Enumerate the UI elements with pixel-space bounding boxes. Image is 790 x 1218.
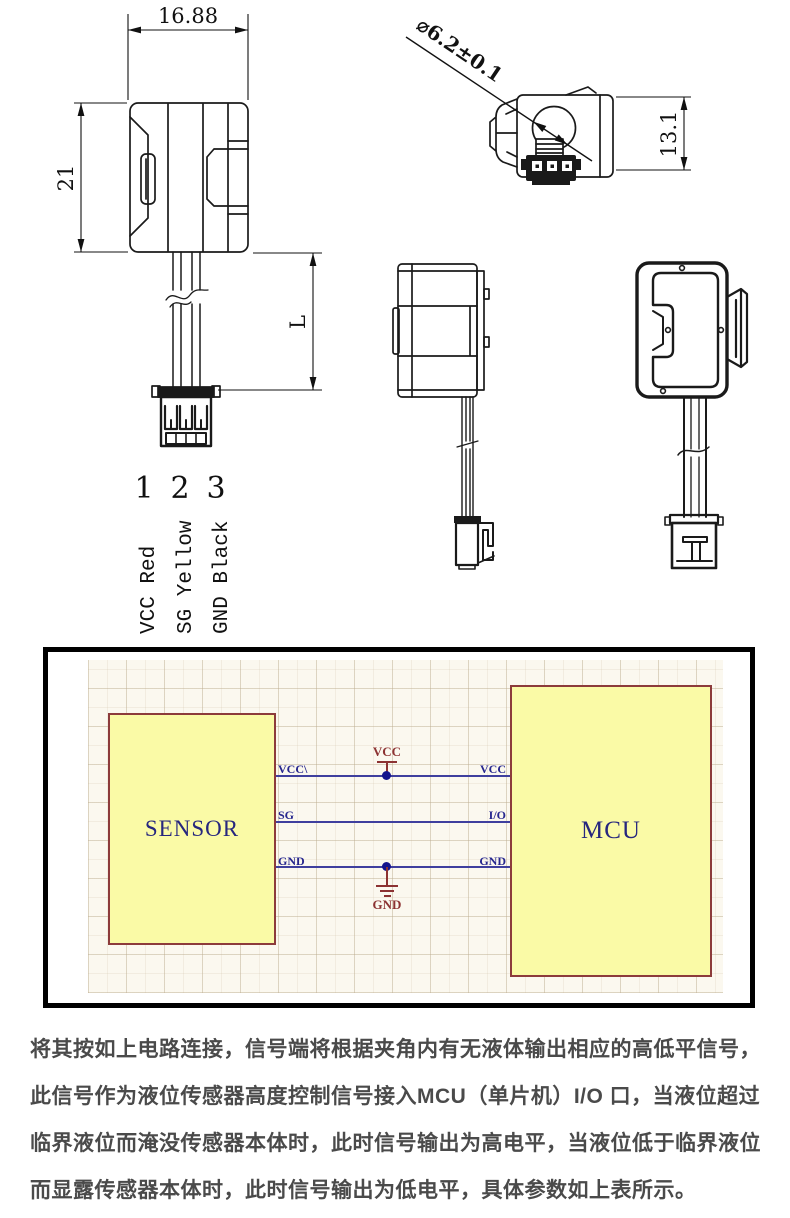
lead-dim-arrow-top	[310, 253, 317, 266]
top-connector-underbar	[532, 181, 570, 185]
back-screw-bottom	[661, 389, 666, 394]
top-connector-pin-2	[551, 165, 555, 169]
height-dim-arrow-top	[78, 103, 85, 116]
back-connector-slot	[677, 537, 712, 561]
width-dim-arrow-right	[235, 27, 248, 34]
top-tab	[566, 87, 596, 95]
sensor-block: SENSOR	[108, 713, 276, 945]
side-connector-latch	[478, 523, 493, 560]
diameter-dimension: ⌀6.2±0.1	[412, 12, 507, 87]
side-right-tab-top	[484, 289, 489, 299]
back-body-outline	[637, 263, 727, 397]
back-screw-right	[719, 328, 724, 333]
width-dimension: 16.88	[158, 4, 218, 28]
back-screw-left	[666, 328, 671, 333]
pin-number-2: 2	[170, 471, 189, 506]
sensor-pin-vcc: VCC\	[278, 762, 307, 776]
back-cable-inner	[691, 397, 699, 517]
side-view-drawing	[393, 264, 494, 569]
height-dimension: 21	[54, 165, 78, 192]
side-cable	[462, 397, 473, 518]
side-height-arrow-top	[681, 97, 688, 110]
pin-label-sg: SG Yellow	[175, 520, 198, 634]
top-connector-pin-1	[536, 165, 540, 169]
top-connector-ear-left	[521, 159, 526, 170]
pin-label-vcc: VCC Red	[138, 546, 161, 634]
dia-arrow-upper	[534, 122, 547, 132]
top-connector-pin-3	[566, 165, 570, 169]
back-cable-outer	[684, 397, 706, 517]
pin-number-3: 3	[206, 471, 225, 506]
side-connector-base	[459, 565, 475, 569]
side-height-dimension: 13.1	[657, 111, 681, 158]
top-connector-ear-right	[576, 159, 581, 170]
sensor-pin-gnd: GND	[278, 854, 305, 868]
side-body-outline	[398, 264, 477, 397]
description-line-4: 而显露传感器本体时，此时信号输出为低电平，具体参数如上表所示。	[30, 1167, 775, 1214]
height-dim-ext-lines	[74, 103, 128, 252]
mcu-block-label: MCU	[581, 817, 641, 845]
sensor-block-label: SENSOR	[145, 816, 239, 842]
sensor-pin-sg: SG	[278, 808, 294, 822]
description-line-3: 临界液位而淹没传感器本体时，此时信号输出为高电平，当液位低于临界液位	[30, 1120, 775, 1167]
description-paragraph: 将其按如上电路连接，信号端将根据夹角内有无液体输出相应的高低平信号， 此信号作为…	[30, 1026, 775, 1214]
gnd-symbol-bar-2	[380, 890, 394, 892]
pin-label-gnd: GND Black	[211, 521, 234, 634]
power-net-label: VCC	[362, 744, 412, 760]
front-view-drawing	[130, 103, 248, 446]
back-jaw-wedge	[653, 311, 663, 350]
description-line-1: 将其按如上电路连接，信号端将根据夹角内有无液体输出相应的高低平信号，	[30, 1026, 775, 1073]
front-body-partitions	[168, 104, 228, 251]
side-height-arrow-bottom	[681, 157, 688, 170]
front-view-dimensions	[74, 14, 322, 390]
front-cable	[173, 252, 200, 388]
vcc-junction-dot	[382, 771, 391, 780]
side-body-lines	[398, 264, 477, 397]
side-right-panel	[477, 271, 484, 390]
side-connector-body	[456, 523, 478, 565]
back-cable-break	[678, 447, 709, 455]
lead-length-dimension: L	[286, 315, 310, 329]
top-left-jaw	[490, 99, 517, 167]
top-view-drawing	[490, 87, 613, 185]
ground-net-label: GND	[362, 897, 412, 913]
back-connector-ear-left	[665, 517, 670, 525]
mcu-pin-io: I/O	[446, 808, 506, 822]
cad-drawings: 16.88 21 L 1 2 3 VCC Red SG Yellow GND B…	[0, 0, 790, 645]
back-screw-top	[680, 266, 685, 271]
pin-number-1: 1	[134, 471, 153, 506]
back-connector-ear-right	[718, 517, 723, 525]
back-view-drawing	[637, 263, 747, 568]
front-connector-cap	[158, 387, 214, 397]
height-dim-arrow-bottom	[78, 239, 85, 252]
back-right-bracket	[727, 289, 747, 367]
mcu-pin-vcc: VCC	[446, 762, 506, 776]
gnd-symbol-bar-1	[376, 885, 398, 887]
gnd-symbol-stem	[386, 867, 388, 885]
side-cable-break	[457, 441, 478, 447]
mcu-block: MCU	[510, 685, 712, 977]
mcu-pin-gnd: GND	[446, 854, 506, 868]
width-dim-arrow-left	[128, 27, 141, 34]
lead-dim-arrow-bottom	[310, 377, 317, 390]
side-right-tab-bottom	[484, 337, 489, 347]
schematic-frame: SENSOR MCU VCC\ SG GND VCC I/O GND VCC G…	[43, 647, 755, 1008]
front-connector-slot-pins	[171, 420, 201, 429]
front-connector-base-dividers	[176, 433, 196, 444]
front-cable-break	[166, 290, 208, 307]
description-line-2: 此信号作为液位传感器高度控制信号接入MCU（单片机）I/O 口，当液位超过	[30, 1073, 775, 1120]
